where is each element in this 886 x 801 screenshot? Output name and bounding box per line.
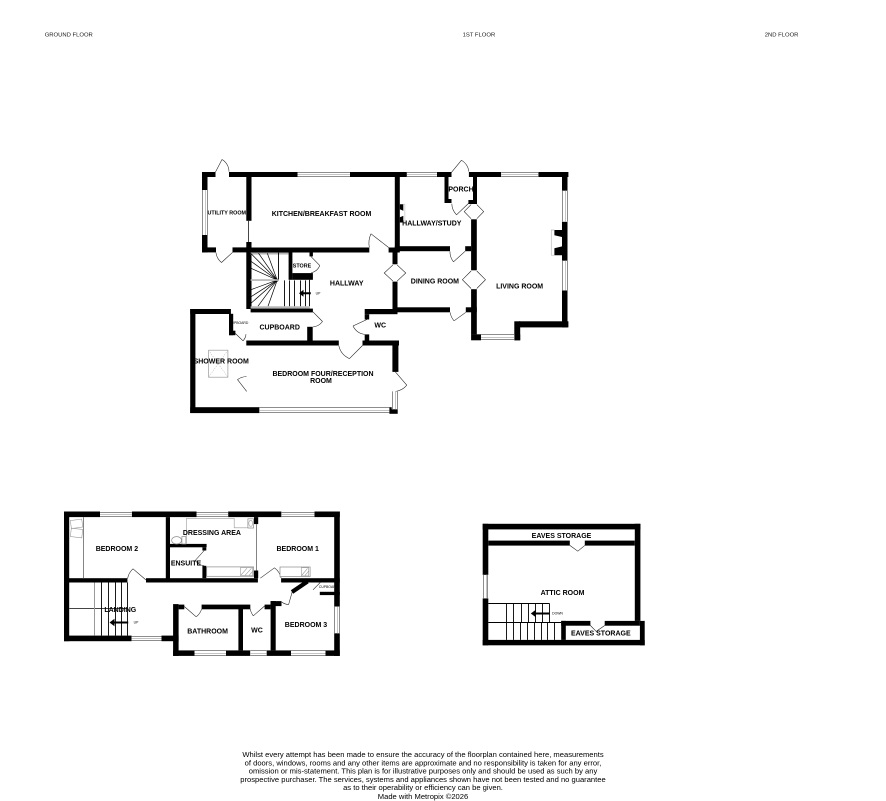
svg-text:BEDROOM 2: BEDROOM 2 [96, 546, 139, 553]
svg-text:1ST FLOOR: 1ST FLOOR [463, 33, 496, 39]
svg-text:ENSUITE: ENSUITE [171, 560, 202, 567]
svg-text:Made with Metropix ©2026: Made with Metropix ©2026 [378, 792, 468, 801]
svg-text:LANDING: LANDING [104, 607, 136, 614]
svg-text:as to their operability or eff: as to their operability or efficiency ca… [343, 783, 503, 792]
svg-text:CUPBOARD: CUPBOARD [259, 325, 299, 332]
svg-text:SHOWER ROOM: SHOWER ROOM [194, 359, 249, 366]
svg-text:KITCHEN/BREAKFAST ROOM: KITCHEN/BREAKFAST ROOM [272, 211, 372, 218]
svg-text:DINING ROOM: DINING ROOM [411, 278, 459, 285]
svg-text:ATTIC ROOM: ATTIC ROOM [541, 590, 585, 597]
svg-text:DOWN: DOWN [552, 611, 563, 615]
svg-text:HALLWAY: HALLWAY [330, 281, 364, 288]
svg-text:CUPBOARD: CUPBOARD [319, 585, 339, 589]
svg-text:EAVES STORAGE: EAVES STORAGE [571, 631, 631, 638]
svg-text:UP: UP [316, 291, 321, 295]
svg-text:UTILITY ROOM: UTILITY ROOM [208, 211, 247, 217]
svg-text:2ND FLOOR: 2ND FLOOR [765, 33, 799, 39]
svg-text:GROUND FLOOR: GROUND FLOOR [45, 33, 93, 39]
svg-text:PORCH: PORCH [448, 187, 473, 194]
svg-text:BEDROOM 1: BEDROOM 1 [276, 546, 319, 553]
svg-text:BATHROOM: BATHROOM [187, 629, 228, 636]
svg-text:CUPBOARD: CUPBOARD [229, 321, 249, 325]
svg-text:DRESSING AREA: DRESSING AREA [183, 530, 241, 537]
svg-text:STORE: STORE [293, 264, 312, 270]
svg-text:BEDROOM 3: BEDROOM 3 [285, 622, 328, 629]
svg-text:HALLWAY/STUDY: HALLWAY/STUDY [402, 220, 462, 227]
svg-text:LIVING ROOM: LIVING ROOM [496, 284, 543, 291]
svg-text:UP: UP [134, 620, 139, 624]
svg-text:WC: WC [374, 322, 386, 329]
svg-text:WC: WC [251, 628, 263, 635]
svg-text:EAVES STORAGE: EAVES STORAGE [532, 533, 592, 540]
svg-text:ROOM: ROOM [310, 378, 332, 385]
